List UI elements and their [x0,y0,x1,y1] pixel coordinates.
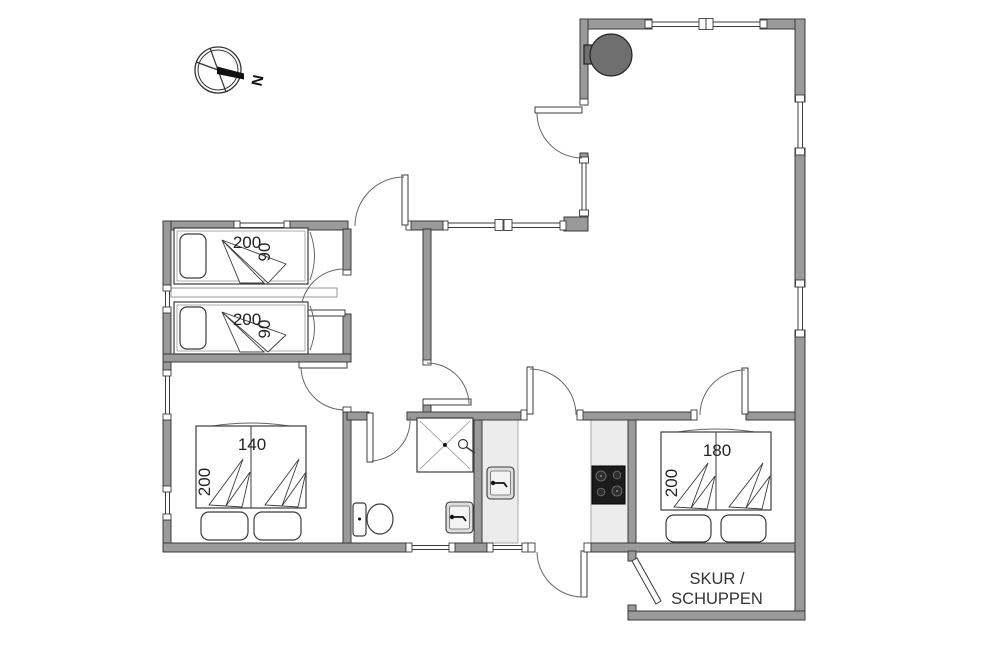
toilet [353,503,393,536]
compass-rose: N [195,47,266,93]
window-south-kitchen [487,543,528,552]
bed2-width-label: 90 [255,320,274,339]
entrance-door-hall [355,175,408,226]
bed3-width-label: 140 [238,435,266,454]
bed-divider-partition [171,288,337,297]
window-south-bathroom [406,543,455,552]
bathroom-sink [446,502,473,533]
back-door-south [528,543,591,597]
bed4-width-label: 180 [703,441,731,460]
door-kitchen [521,367,583,420]
shed-label-line2: SCHUPPEN [671,590,763,608]
window-west-bedroom2 [163,285,171,313]
door-bathroom [367,413,410,462]
window-north-living [645,19,767,30]
bed3-length-label: 200 [195,468,214,496]
shower [417,418,475,472]
window-west-living [580,157,589,216]
door-hall-to-dining [423,360,471,405]
floor-plan-canvas: N 200 90 200 90 140 200 180 200 SKUR / S… [0,0,1000,666]
cooktop [592,466,625,504]
window-east-living-2 [796,280,805,337]
door-bedroom4 [691,368,748,420]
door-shed [632,558,661,604]
shed-label: SKUR / SCHUPPEN [671,570,763,608]
terrace-door-living [535,99,588,158]
bed1-width-label: 90 [255,243,274,262]
kitchen-sink [487,467,514,499]
window-west-bedroom3-1 [163,370,171,420]
window-west-bedroom3-2 [163,486,171,520]
compass-north-label: N [247,73,266,87]
shed-label-line1: SKUR / [689,570,744,588]
door-bedroom3 [299,362,351,412]
floor-plan-drawing: N 200 90 200 90 140 200 180 200 SKUR / S… [0,0,1000,666]
window-east-living-1 [796,95,805,155]
bed4-length-label: 200 [662,469,681,497]
wood-stove [584,34,632,76]
